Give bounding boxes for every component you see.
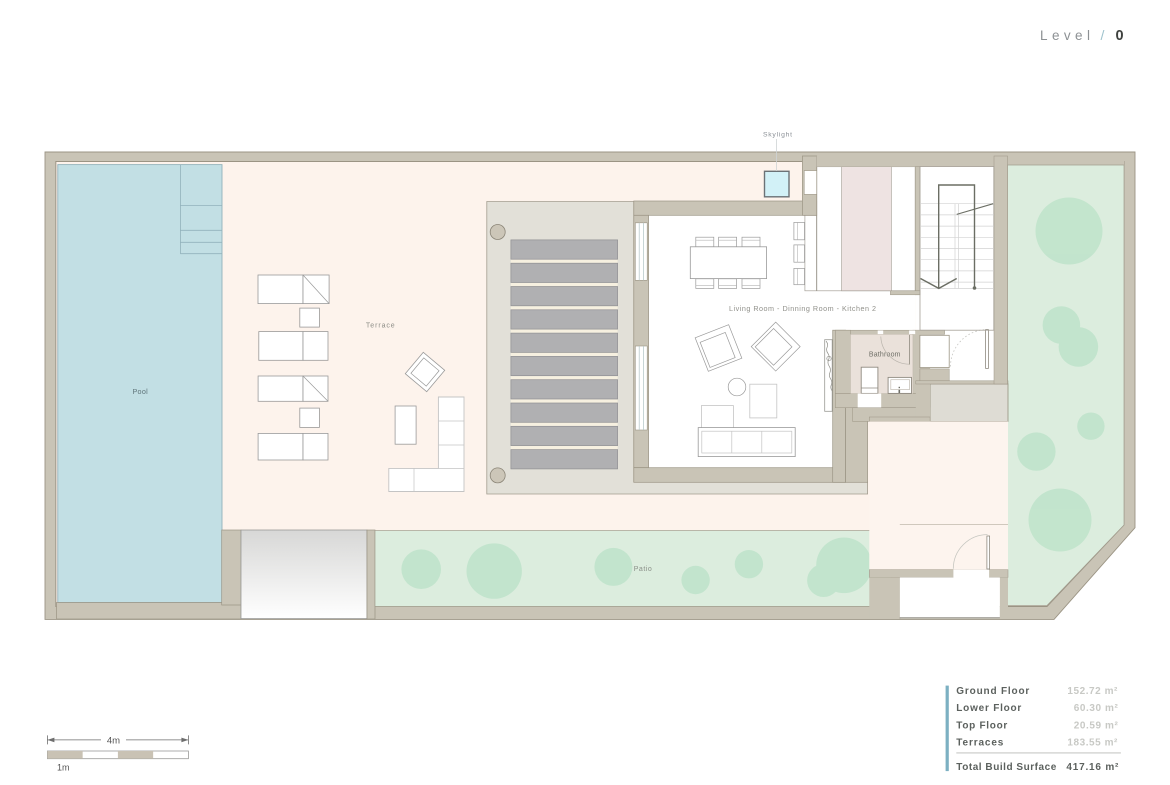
svg-text:0: 0: [1116, 28, 1124, 44]
svg-text:Terrace: Terrace: [366, 323, 395, 330]
svg-text:4m: 4m: [107, 735, 120, 746]
svg-text:Terraces: Terraces: [956, 737, 1003, 748]
svg-text:Level: Level: [1040, 28, 1090, 43]
svg-text:183.55 m²: 183.55 m²: [1067, 737, 1118, 748]
svg-text:Total Build Surface: Total Build Surface: [956, 762, 1056, 773]
svg-text:/: /: [1101, 27, 1105, 43]
svg-text:152.72 m²: 152.72 m²: [1067, 686, 1118, 697]
svg-text:20.59 m²: 20.59 m²: [1074, 720, 1119, 731]
svg-text:1m: 1m: [57, 763, 70, 773]
svg-text:Bathroom: Bathroom: [869, 352, 901, 359]
svg-text:Ground Floor: Ground Floor: [956, 686, 1029, 697]
svg-text:60.30 m²: 60.30 m²: [1074, 703, 1119, 714]
svg-text:Skylight: Skylight: [763, 132, 792, 139]
svg-text:417.16 m²: 417.16 m²: [1066, 762, 1119, 773]
svg-text:Top Floor: Top Floor: [956, 720, 1007, 731]
svg-text:Lower Floor: Lower Floor: [956, 703, 1021, 714]
svg-text:Living Room - Dinning Room - K: Living Room - Dinning Room - Kitchen 2: [729, 304, 876, 313]
svg-text:Patio: Patio: [634, 566, 652, 573]
svg-text:Pool: Pool: [133, 387, 149, 396]
